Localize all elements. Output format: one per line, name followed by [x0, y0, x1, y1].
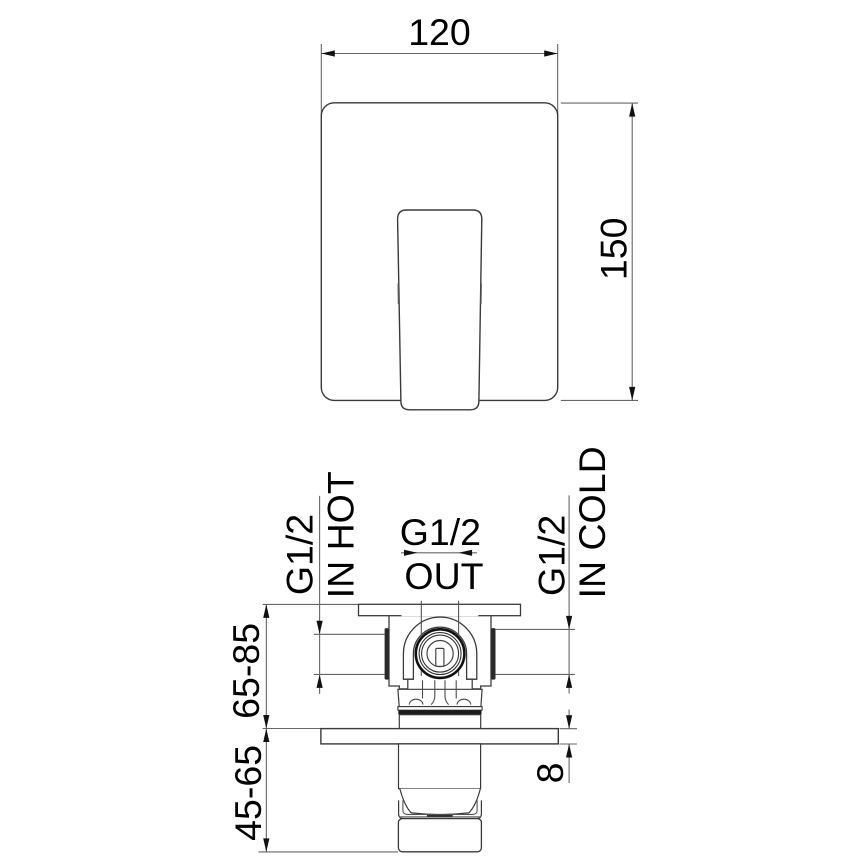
svg-text:8: 8: [529, 762, 571, 783]
svg-text:45-65: 45-65: [227, 745, 269, 841]
svg-text:65-85: 65-85: [225, 623, 267, 719]
svg-text:IN COLD: IN COLD: [571, 446, 613, 598]
svg-text:G1/2: G1/2: [279, 514, 321, 595]
svg-text:150: 150: [593, 218, 635, 281]
svg-text:120: 120: [408, 11, 471, 53]
svg-text:IN HOT: IN HOT: [320, 471, 362, 598]
svg-text:G1/2: G1/2: [400, 511, 481, 553]
svg-text:G1/2: G1/2: [530, 515, 572, 596]
svg-text:OUT: OUT: [404, 555, 483, 597]
